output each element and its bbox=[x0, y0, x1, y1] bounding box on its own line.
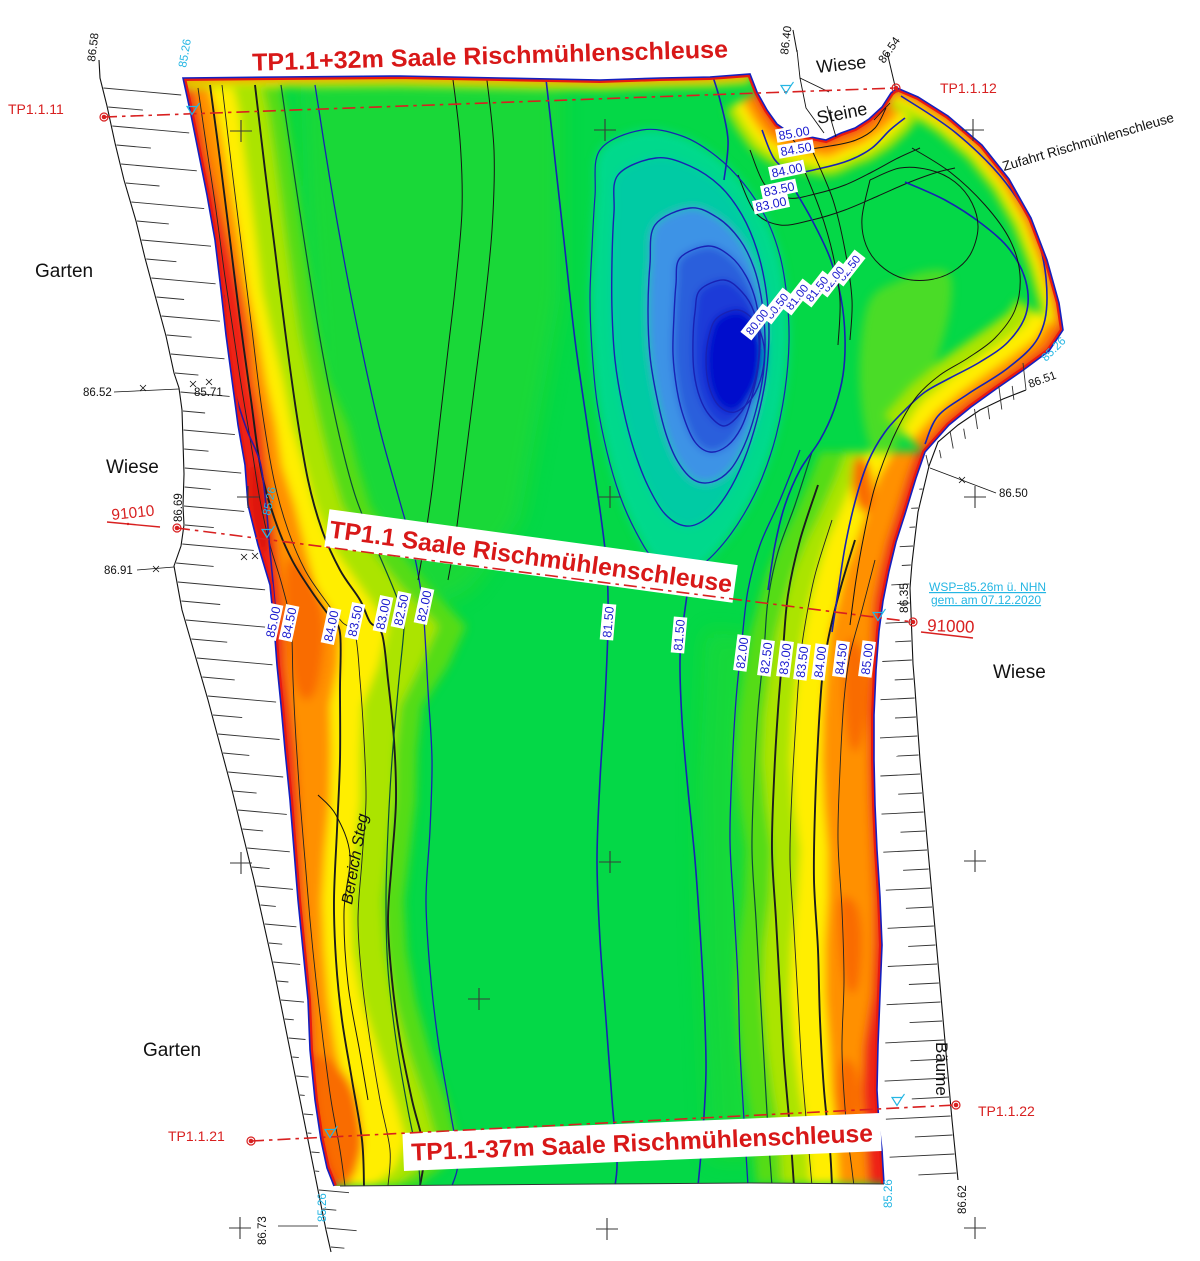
svg-text:TP1.1.22: TP1.1.22 bbox=[978, 1103, 1035, 1119]
svg-text:81.50: 81.50 bbox=[600, 606, 617, 638]
svg-text:86.73: 86.73 bbox=[257, 1216, 269, 1245]
svg-text:gem. am 07.12.2020: gem. am 07.12.2020 bbox=[931, 593, 1041, 607]
svg-text:Garten: Garten bbox=[35, 261, 93, 282]
svg-text:86.62: 86.62 bbox=[957, 1185, 969, 1214]
svg-text:Bäume: Bäume bbox=[932, 1042, 951, 1096]
svg-text:85.71: 85.71 bbox=[194, 387, 223, 399]
svg-text:85.26: 85.26 bbox=[317, 1193, 329, 1222]
svg-text:Wiese: Wiese bbox=[106, 457, 159, 478]
svg-text:TP1.1.11: TP1.1.11 bbox=[8, 101, 64, 117]
svg-text:TP1.1.12: TP1.1.12 bbox=[940, 80, 997, 96]
svg-text:Wiese: Wiese bbox=[993, 662, 1046, 683]
svg-text:86.52: 86.52 bbox=[83, 387, 112, 399]
svg-text:TP1.1.21: TP1.1.21 bbox=[168, 1128, 225, 1144]
svg-text:86.50: 86.50 bbox=[999, 488, 1028, 500]
svg-text:86.69: 86.69 bbox=[173, 493, 185, 522]
svg-text:86.91: 86.91 bbox=[104, 565, 133, 577]
svg-text:WSP=85.26m ü. NHN: WSP=85.26m ü. NHN bbox=[929, 580, 1046, 594]
svg-text:86.35: 86.35 bbox=[897, 583, 911, 613]
svg-text:Garten: Garten bbox=[143, 1040, 201, 1061]
svg-text:85.26: 85.26 bbox=[883, 1179, 895, 1208]
svg-text:81.50: 81.50 bbox=[671, 619, 688, 651]
